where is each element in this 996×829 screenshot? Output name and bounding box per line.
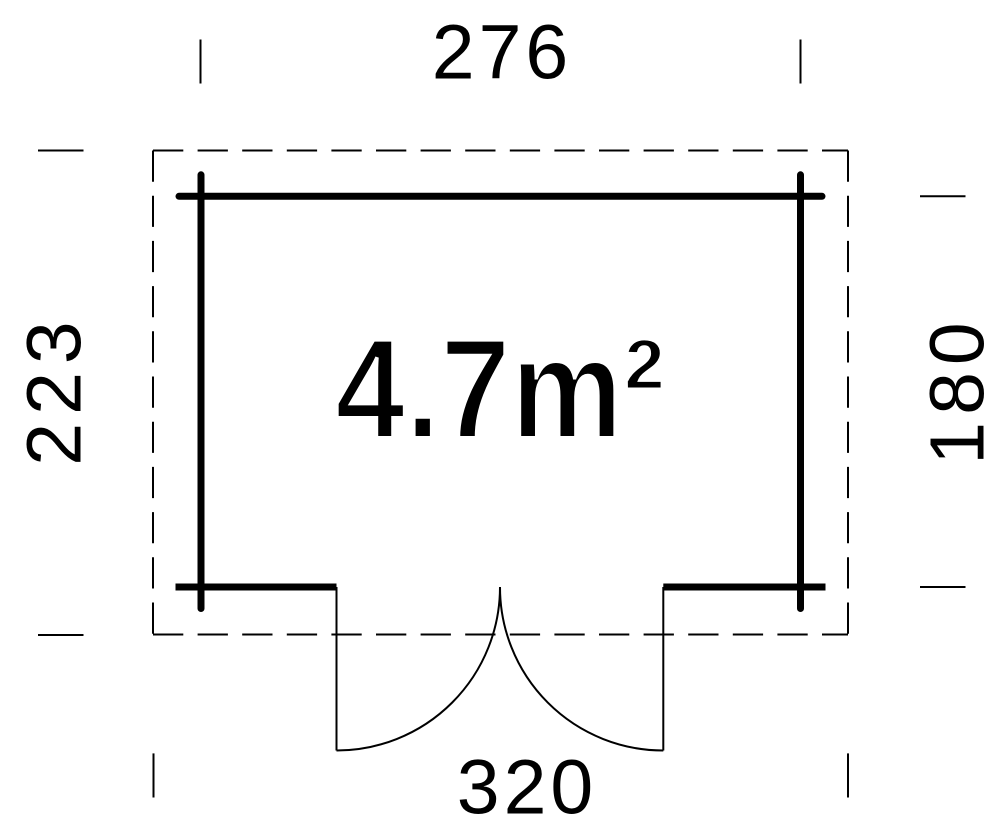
- svg-text:276: 276: [432, 10, 572, 96]
- svg-text:223: 223: [12, 313, 98, 465]
- svg-text:180: 180: [915, 315, 996, 464]
- svg-text:320: 320: [457, 745, 597, 829]
- svg-text:4.7m²: 4.7m²: [335, 310, 665, 469]
